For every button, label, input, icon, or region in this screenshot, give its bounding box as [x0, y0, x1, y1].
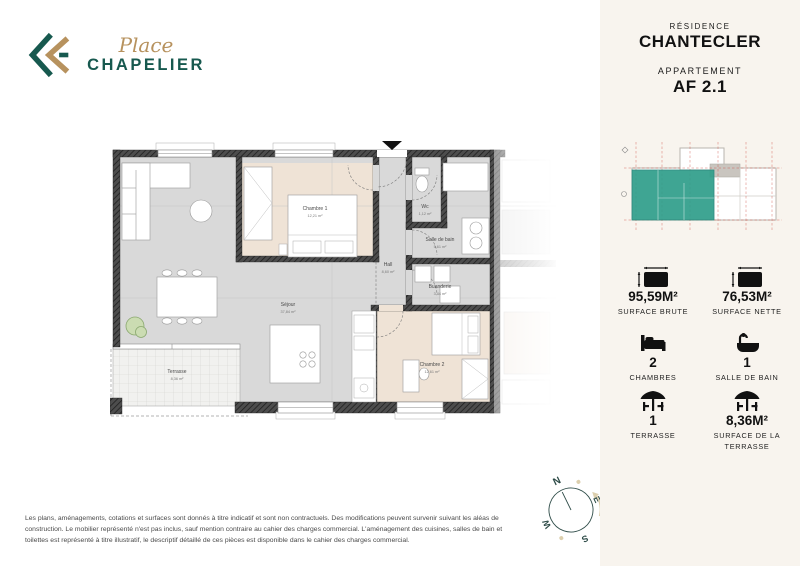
- terrace-glazing: [113, 344, 240, 349]
- room-wc-label: Wc: [421, 204, 429, 210]
- stat-surface-terrasse: 8,36M² SURFACE DE LA TERRASSE: [700, 390, 794, 470]
- bed-chambre-2: [432, 313, 480, 355]
- stat-label: SURFACE DE LA TERRASSE: [704, 430, 790, 453]
- residence-name: CHANTECLER: [600, 32, 800, 52]
- room-terrasse-area: 8,36 m²: [171, 377, 185, 381]
- room-hall-area: 8,60 m²: [382, 270, 396, 274]
- room-chambre-1-area: 12,21 m²: [308, 214, 324, 218]
- stat-value: 76,53M²: [722, 289, 772, 304]
- stat-salle-de-bain: 1 SALLE DE BAIN: [700, 332, 794, 390]
- stat-terrasse: 1 TERRASSE: [606, 390, 700, 470]
- wardrobe-chambre-1: [244, 167, 272, 240]
- stat-surface-nette: 76,53M² SURFACE NETTE: [700, 266, 794, 332]
- surface-icon: [635, 266, 671, 288]
- room-sdb-label: Salle de bain: [426, 237, 455, 243]
- entry-arrow-icon: [382, 141, 402, 150]
- room-sejour-label: Séjour: [281, 302, 296, 308]
- stat-value: 95,59M²: [628, 289, 678, 304]
- room-chambre-1-label: Chambre 1: [303, 206, 328, 212]
- brand-name-caps: CHAPELIER: [80, 56, 212, 74]
- stat-value: 2: [649, 355, 657, 370]
- entry-door-gap: [377, 150, 407, 157]
- stat-label: SURFACE BRUTE: [618, 306, 688, 317]
- kitchen-island: [270, 325, 320, 383]
- terrace-icon: [635, 390, 671, 412]
- terrace-icon: [729, 390, 765, 412]
- miniplan-core: [710, 164, 740, 177]
- wardrobe-chambre-2: [462, 359, 488, 399]
- bed-icon: [635, 332, 671, 354]
- floor-plan: Chambre 1 12,21 m² Wc 1,12 m² Salle de b…: [110, 140, 560, 432]
- chapelier-logo-icon: [26, 27, 72, 83]
- stat-value: 1: [649, 413, 657, 428]
- locator-miniplan: [618, 138, 786, 236]
- room-chambre-2-label: Chambre 2: [420, 362, 445, 368]
- plan-sheet: Place CHAPELIER: [0, 0, 800, 566]
- room-wc-area: 1,12 m²: [419, 212, 433, 216]
- room-terrasse-label: Terrasse: [167, 369, 186, 375]
- round-table: [190, 200, 212, 222]
- stat-label: SURFACE NETTE: [712, 306, 782, 317]
- room-buanderie-label: Buanderie: [429, 284, 452, 290]
- brand-logo: Place CHAPELIER: [26, 24, 216, 86]
- stat-value: 8,36M²: [726, 413, 768, 428]
- stat-label: TERRASSE: [631, 430, 676, 441]
- room-hall-label: Hall: [384, 262, 393, 268]
- stat-label: SALLE DE BAIN: [715, 372, 778, 383]
- dining-table: [157, 270, 217, 324]
- compass-n: N: [552, 475, 563, 488]
- kitchen-units: [352, 311, 376, 402]
- stat-label: CHAMBRES: [630, 372, 677, 383]
- bed-chambre-1: [279, 195, 357, 257]
- room-sdb-area: 5,61 m²: [434, 245, 448, 249]
- stat-value: 1: [743, 355, 751, 370]
- toilet: [415, 168, 429, 192]
- compass-s: S: [580, 533, 590, 545]
- disclaimer-text: Les plans, aménagements, cotations et su…: [25, 514, 525, 547]
- bath-icon: [729, 332, 765, 354]
- neighbour-unit: [494, 140, 560, 432]
- stats-grid: 95,59M² SURFACE BRUTE 76,53M² SURFACE NE…: [606, 266, 794, 470]
- residence-label: RÉSIDENCE: [600, 22, 800, 31]
- miniplan-highlight: [632, 170, 714, 220]
- brand-name-script: Place: [80, 35, 212, 55]
- room-sejour-area: 37,84 m²: [281, 310, 297, 314]
- apartment-name: AF 2.1: [600, 77, 800, 97]
- room-buanderie-area: 3,44 m²: [434, 292, 448, 296]
- apartment-label: APPARTEMENT: [600, 66, 800, 76]
- room-chambre-2-area: 12,61 m²: [425, 370, 441, 374]
- surface-icon: [729, 266, 765, 288]
- stat-chambres: 2 CHAMBRES: [606, 332, 700, 390]
- stat-surface-brute: 95,59M² SURFACE BRUTE: [606, 266, 700, 332]
